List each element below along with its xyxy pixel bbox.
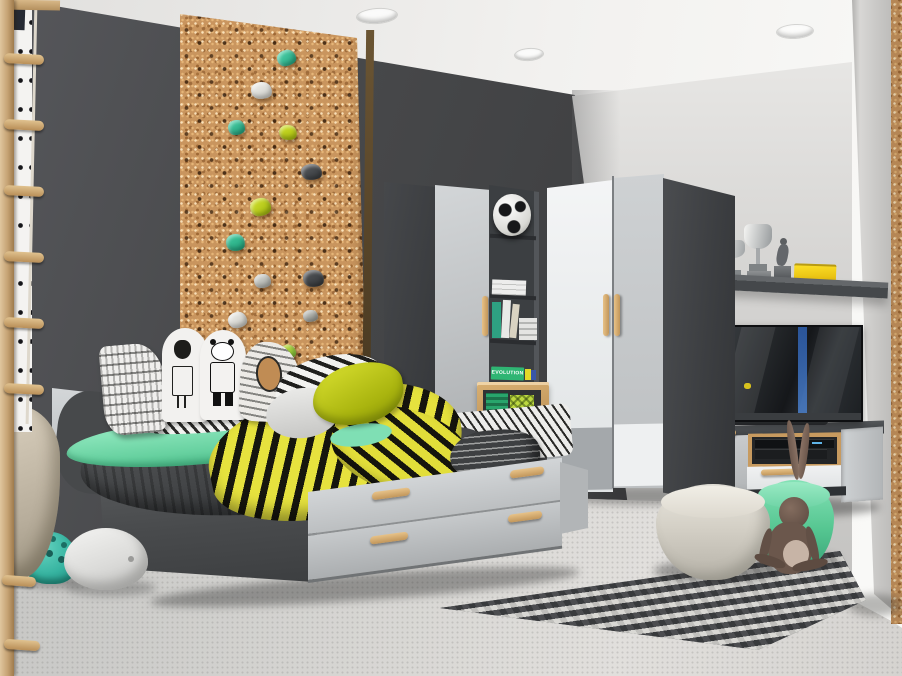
kids-bedroom-photo: EVOLUTION [0,0,902,676]
ceiling-light [514,47,545,62]
wardrobe-side-panel [663,172,735,506]
book-accent-blue [531,370,536,380]
pouf-cream-top [661,486,765,518]
books-stack-small [519,318,537,340]
toy-bowl-dot [128,556,134,562]
toy-helmet-hole [61,542,67,548]
doll-panda-leg [213,392,221,406]
book-spine-teal [492,302,501,338]
ladder-rung [4,383,44,395]
cork-strip-right [891,0,902,624]
ladder-rung [4,251,44,263]
trophy-cup-large [744,224,772,249]
doll-panda-head [211,342,234,361]
tv-stand-side [841,427,883,503]
wardrobe-door-gray-white-block [613,424,664,487]
trophy-cup-large-stem [756,248,760,265]
doll-panda-body [210,362,235,393]
doll-girl-dress [172,366,193,396]
ladder-rung [4,53,44,65]
doll-girl-leg [177,395,179,408]
trophy-cup-large-base [749,264,767,271]
climbing-hold-gray [303,310,318,322]
tv-reflection-blue [798,327,807,420]
climbing-hold-gray [254,274,271,288]
evolution-book: EVOLUTION [491,366,524,380]
tv-reflection-dot [744,383,751,389]
wall-column [850,0,895,612]
ladder-rung [4,119,44,131]
wardrobe-handle-right [614,294,620,336]
toy-bowl [64,528,148,590]
doll-panda-leg [225,392,233,406]
wardrobe-handle-left [603,294,609,336]
av-device-light [812,442,822,444]
ladder-rung [4,317,44,329]
climbing-hold-dark [300,163,322,180]
cabinet-door-handle [482,296,488,336]
ladder-rung [4,185,44,197]
climbing-hold-teal [228,120,245,135]
bed-foot-panel [560,462,588,538]
doll-girl-leg [184,395,186,408]
doll-girl-hair [174,340,191,359]
ceiling-light [355,7,398,26]
books-stack-white [492,279,527,295]
football [493,194,531,236]
ceiling-light [776,23,815,40]
